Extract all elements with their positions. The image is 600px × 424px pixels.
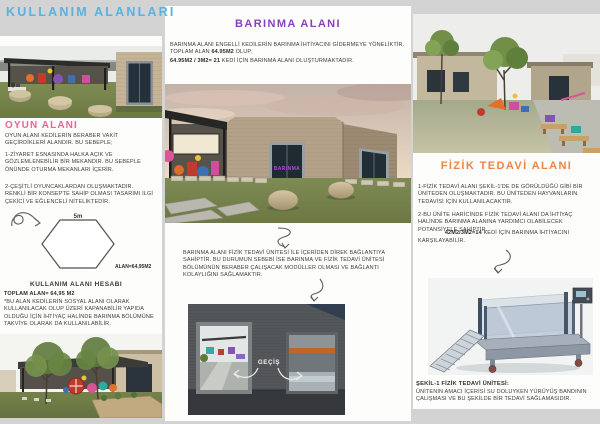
play-area-render-image: [0, 46, 162, 118]
left-doorway-outdoor-view: [196, 322, 252, 394]
fizik-formula-line2: KARŞILAYABİLİR.: [418, 238, 596, 245]
presentation-board: KULLANIM ALANLARI: [0, 0, 600, 424]
gecis-label: GEÇİŞ: [258, 359, 280, 366]
hexagon-shape: [42, 220, 114, 268]
down-arrow-doodle-icon: [490, 248, 514, 276]
sekil-caption-body: ÜNİTENİN AMACI İÇERİSİ SU DOLUYKEN YÜRÜY…: [416, 389, 596, 404]
barinma-alani-heading: BARINMA ALANI: [165, 18, 411, 30]
barinma-body-tail: OLUP;: [234, 49, 253, 55]
down-arrow-doodle-icon: [272, 226, 298, 250]
fizik-tedavi-heading: FİZİK TEDAVİ ALANI: [413, 160, 600, 172]
oyun-item2-text: 2-ÇEŞİTLİ OYUNCAKLARDAN OLUŞMAKTADIR. RE…: [5, 184, 155, 206]
page-title: KULLANIM ALANLARI: [6, 5, 176, 19]
connection-note-text: BARINMA ALANI FİZİK TEDAVİ ÜNİTESİ İLE İ…: [183, 250, 407, 279]
hexagon-area-label: ALAN=64,95M2: [115, 264, 151, 270]
oyun-item1-text: 1-ZİYARET ESNASINDA HALKA AÇIK VE GÖZLEM…: [5, 152, 163, 174]
hexagon-side-label: 5m: [74, 214, 83, 220]
barinma-formula-text: 64.95M2 / 3M2= 21 KEDİ İÇİN BARINMA ALAN…: [170, 58, 408, 65]
fizik-formula-tail: KEDİ İÇİN BARINMA İHTİYACINI: [482, 230, 569, 236]
brick-building-corner: [116, 52, 162, 112]
hesap-total-text: TOPLAM ALAN= 64,95 M2: [4, 291, 75, 298]
oyun-alani-heading: OYUN ALANI: [5, 120, 78, 131]
hesap-heading: KULLANIM ALANI HESABI: [30, 281, 122, 288]
hexagon-area-diagram: 5m ALAN=64,95M2: [10, 210, 160, 278]
barinma-body-area: 64.95M2: [211, 49, 233, 55]
hesap-body-text: *BU ALAN KEDİLERİN SOSYAL ALANI OLARAK K…: [4, 299, 160, 328]
right-doorway-interior-view: [286, 332, 338, 394]
barinma-body-text: BARINMA ALANI ENGELLİ KEDİLERİN BARINMA …: [170, 42, 408, 57]
spiral-arrow-doodle-icon: [12, 213, 40, 226]
fizik-formula: 42M2/3M2=14: [445, 230, 482, 236]
site-overview-render-image: [413, 14, 600, 153]
shelter-building-render-image: BARINMA: [165, 84, 411, 223]
barinma-body-lead: BARINMA ALANI ENGELLİ KEDİLERİN BARINMA …: [170, 42, 404, 55]
garden-render-image: [0, 334, 162, 418]
door-sign-label: BARINMA: [274, 166, 300, 172]
fizik-item1-text: 1-FİZİK TEDAVİ ALANI ŞEKİL-1'DE DE GÖRÜL…: [418, 184, 596, 206]
therapy-unit-render-image: [428, 278, 593, 375]
barinma-formula-tail: KEDİ İÇİN BARINMA ALANI OLUŞTURMAKTADIR.: [220, 58, 354, 64]
sekil-caption-heading: ŞEKİL-1 FİZİK TEDAVİ ÜNİTESİ:: [416, 381, 509, 387]
down-arrow-doodle-icon: [306, 277, 328, 304]
passage-render-image: GEÇİŞ: [188, 304, 345, 415]
oyun-intro-text: OYUN ALANI KEDİLERİN BERABER VAKİT GEÇİR…: [5, 133, 157, 148]
barinma-formula: 64.95M2 / 3M2= 21: [170, 58, 220, 64]
fizik-formula-text: 42M2/3M2=14 KEDİ İÇİN BARINMA İHTİYACINI: [418, 230, 596, 237]
